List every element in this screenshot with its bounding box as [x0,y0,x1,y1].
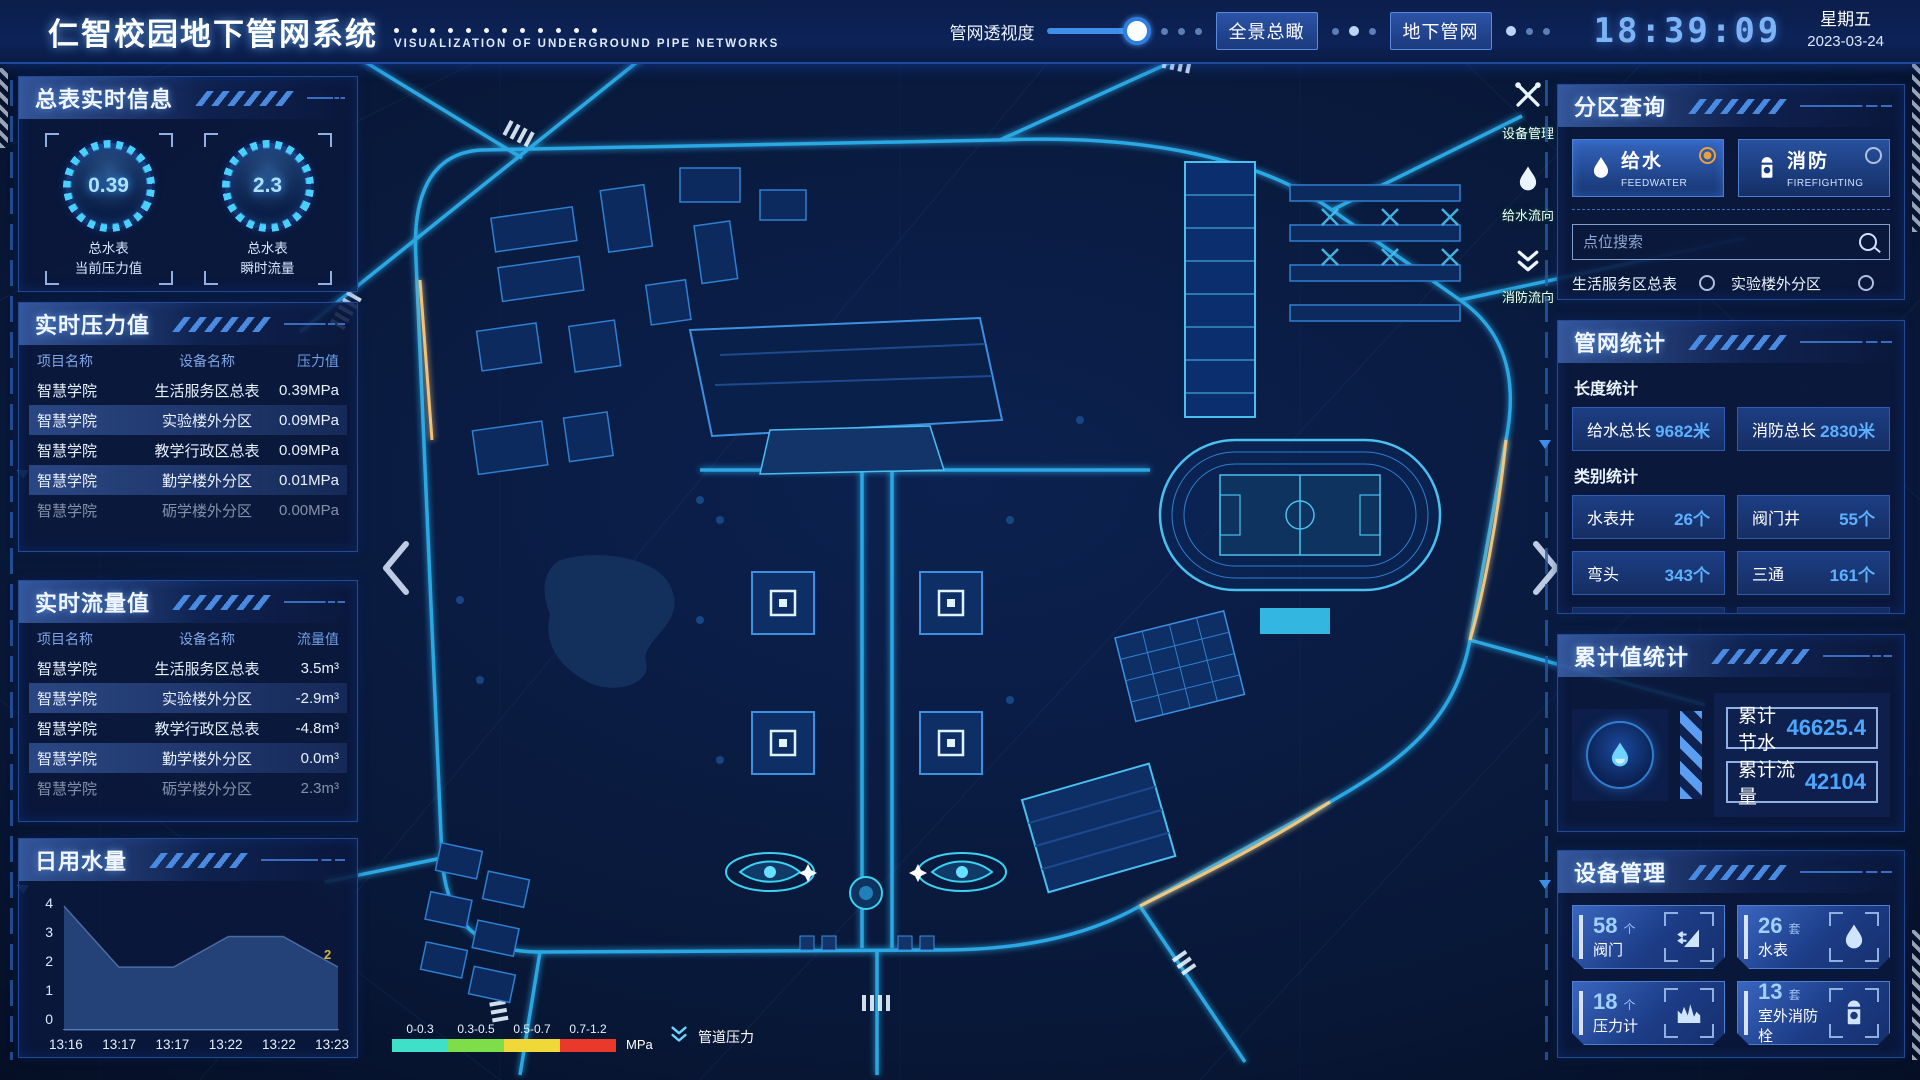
left-rail [10,80,13,1060]
carousel-left-arrow[interactable] [378,540,412,601]
slash-decor [149,853,253,868]
table-row: 智慧学院勤学楼外分区0.0m³ [29,743,347,773]
gauge-label: 总水表 [247,241,288,256]
underground-pipes-button[interactable]: 地下管网 [1390,12,1492,50]
search-icon[interactable] [1859,233,1877,251]
pressure-legend: 0-0.3 0.3-0.5 0.5-0.7 0.7-1.2 MPa [392,1022,653,1052]
stat-box: 水表井26个 [1572,495,1725,539]
zone-query-panel: 分区查询 给水FEEDWATER 消防FIREFIGHTING 生活服务区总表 … [1557,84,1905,300]
pipe-pressure-label: 管道压力 [698,1027,754,1047]
device-management-panel: 设备管理 58个阀门 26套水表 18个压力计 13套室外消防栓 [1557,850,1905,1058]
device-card-hydrant[interactable]: 13套室外消防栓 [1737,981,1890,1045]
cumulative-row: 累计流量42104 [1726,761,1878,803]
table-row: 智慧学院生活服务区总表3.5m³ [29,653,347,683]
tab-firefighting[interactable]: 消防FIREFIGHTING [1738,139,1890,197]
decorative-dots [1332,26,1376,36]
accent-bar [1579,991,1583,1035]
panel-title: 实时流量值 [35,586,150,618]
panel-title: 设备管理 [1574,856,1666,888]
panel-title: 日用水量 [35,844,127,876]
tab-label: 给水 [1621,151,1663,172]
gauge-label: 当前压力值 [75,261,143,276]
slash-decor [172,317,276,332]
table-header: 项目名称 设备名称 压力值 [29,347,347,375]
gauge-value: 0.39 [66,143,152,229]
weekday: 星期五 [1820,9,1871,32]
accent-bar [1744,915,1748,959]
title-line [1800,341,1892,343]
hazard-stripe [1912,62,1920,232]
zone-list-item[interactable]: 生活服务区总表 [1572,266,1731,300]
hydrant-icon [1747,155,1787,181]
panel-title: 累计值统计 [1574,640,1689,672]
daily-usage-panel: 日用水量 43 21 0 2 13:1613:17 13:1713:22 13:… [18,838,358,1058]
legend-unit: MPa [626,1037,653,1052]
table-row: 智慧学院生活服务区总表0.39MPa [29,375,347,405]
slider-thumb[interactable] [1123,17,1151,45]
water-drop-icon [1586,721,1654,789]
table-row: 智慧学院砺学楼外分区2.3m³ [29,773,347,803]
table-header: 项目名称 设备名称 流量值 [29,625,347,653]
slash-decor [1688,335,1792,350]
legend-segment: 0.7-1.2 [560,1022,616,1052]
x-axis-labels: 13:1613:17 13:1713:22 13:2213:23 [49,1037,349,1052]
transparency-slider[interactable] [1047,28,1147,34]
double-chevron-down-icon [668,1024,690,1049]
title-line [1823,655,1892,657]
tab-feedwater[interactable]: 给水FEEDWATER [1572,139,1724,197]
title-line [307,97,345,99]
clock: 18:39:09 [1594,11,1782,51]
radio-unselected[interactable] [1699,275,1715,291]
stat-box: 弯头343个 [1572,551,1725,595]
title-line [284,601,345,603]
panel-title: 实时压力值 [35,308,150,340]
stat-box: 阀门井55个 [1737,495,1890,539]
table-row: 智慧学院实验楼外分区-2.9m³ [29,683,347,713]
divider [1572,209,1890,210]
group-label: 长度统计 [1574,375,1904,399]
transparency-label: 管网透视度 [950,19,1035,44]
radio-selected[interactable] [1699,147,1716,164]
table-row: 智慧学院勤学楼外分区0.01MPa [29,465,347,495]
tab-sublabel: FIREFIGHTING [1787,178,1864,189]
decorative-dots [1506,26,1550,36]
pressure-gauge-card: 0.39 总水表当前压力值 [45,133,173,285]
search-box [1572,224,1890,260]
water-saving-tile [1572,709,1668,801]
legend-segment: 0.5-0.7 [504,1022,560,1052]
zone-list: 生活服务区总表 实验楼外分区 教学行政区总表 勤学楼外分区 砺学楼外分区 宿舍区… [1558,260,1904,300]
x-axis [63,1029,339,1030]
date: 2023-03-24 [1807,32,1884,52]
flow-gauge-card: 2.3 总水表瞬时流量 [204,133,332,285]
panel-title: 总表实时信息 [35,82,173,114]
water-meter-icon [1829,912,1879,962]
pipe-pressure-indicator: 管道压力 [668,1024,754,1049]
gauge-ring: 0.39 [66,143,152,229]
decorative-dots [394,28,779,33]
tools-icon [1511,78,1545,117]
hazard-bar [1680,711,1702,799]
radio-unselected[interactable] [1865,147,1882,164]
device-card-valve[interactable]: 58个阀门 [1572,905,1725,969]
pipe-stats-panel: 管网统计 长度统计 给水总长9682米 消防总长2830米 类别统计 水表井26… [1557,320,1905,614]
decorative-dots [1161,28,1202,35]
app-subtitle: VISUALIZATION OF UNDERGROUND PIPE NETWOR… [394,38,779,50]
gauge-label: 瞬时流量 [241,261,295,276]
accent-bar [1579,915,1583,959]
search-input[interactable] [1573,234,1859,251]
slash-decor [195,91,299,106]
rail-marker [1539,880,1551,889]
tower-block [1185,162,1255,417]
gauge-label: 总水表 [88,241,129,256]
device-card-water-meter[interactable]: 26套水表 [1737,905,1890,969]
legend-segment: 0-0.3 [392,1022,448,1052]
double-chevron-down-icon [1513,246,1543,281]
legend-segment: 0.3-0.5 [448,1022,504,1052]
legend-swatch [448,1039,504,1052]
accent-bar [1744,991,1748,1035]
flow-table-panel: 实时流量值 项目名称 设备名称 流量值 智慧学院生活服务区总表3.5m³ 智慧学… [18,580,358,822]
device-card-pressure-gauge[interactable]: 18个压力计 [1572,981,1725,1045]
meter-info-panel: 总表实时信息 0.39 总水表当前压力值 2.3 总水表瞬时流量 [18,76,358,292]
table-row: 智慧学院教学行政区总表0.09MPa [29,435,347,465]
zone-list-item[interactable]: 实验楼外分区 [1731,266,1890,300]
panel-title: 管网统计 [1574,326,1666,358]
y-axis-labels: 43 21 0 [31,895,53,1027]
hydrant-icon [1829,988,1879,1038]
stat-box: 消防总长2830米 [1737,407,1890,451]
slash-decor [1711,649,1815,664]
slash-decor [1688,99,1792,114]
cumulative-panel: 累计值统计 累计节水46625.4 累计流量42104 [1557,634,1905,832]
slash-decor [1688,865,1792,880]
tab-sublabel: FEEDWATER [1621,178,1687,189]
stat-box: 给水总长9682米 [1572,407,1725,451]
rail-marker [1539,440,1551,449]
data-point-label: 2 [324,947,331,962]
stat-box-clipped [1737,607,1890,614]
tab-label: 消防 [1787,151,1829,172]
app-title: 仁智校园地下管网系统 [48,9,378,54]
title-line [1800,871,1892,873]
water-drop-icon [1581,155,1621,181]
legend-swatch [560,1039,616,1052]
gauge-value: 2.3 [225,143,311,229]
title-line [284,323,345,325]
top-header: 仁智校园地下管网系统 VISUALIZATION OF UNDERGROUND … [0,0,1920,64]
stat-box: 三通161个 [1737,551,1890,595]
daily-usage-chart: 43 21 0 2 13:1613:17 13:1713:22 13:2213:… [29,895,349,1058]
pressure-table-panel: 实时压力值 项目名称 设备名称 压力值 智慧学院生活服务区总表0.39MPa 智… [18,302,358,552]
right-rail [1545,80,1548,1060]
hazard-stripe [0,68,8,148]
area-chart: 2 [63,899,339,1031]
table-row: 智慧学院教学行政区总表-4.8m³ [29,713,347,743]
table-row: 智慧学院砺学楼外分区0.00MPa [29,495,347,525]
cumulative-row: 累计节水46625.4 [1726,707,1878,749]
title-line [1800,105,1892,107]
legend-swatch [504,1039,560,1052]
title-line [261,859,345,861]
legend-swatch [392,1039,448,1052]
radio-unselected[interactable] [1858,275,1874,291]
panel-title: 分区查询 [1574,90,1666,122]
hazard-stripe [1912,930,1920,1060]
map-tool-rail: 设备管理 给水流向 消防流向 [1492,78,1564,306]
valve-icon [1664,912,1714,962]
stat-box-clipped [1572,607,1725,614]
overview-button[interactable]: 全景总瞰 [1216,12,1318,50]
pressure-gauge-icon [1664,988,1714,1038]
gauge-ring: 2.3 [225,143,311,229]
slash-decor [172,595,276,610]
group-label: 类别统计 [1574,463,1904,487]
table-row: 智慧学院实验楼外分区0.09MPa [29,405,347,435]
water-drop-icon [1513,164,1543,199]
